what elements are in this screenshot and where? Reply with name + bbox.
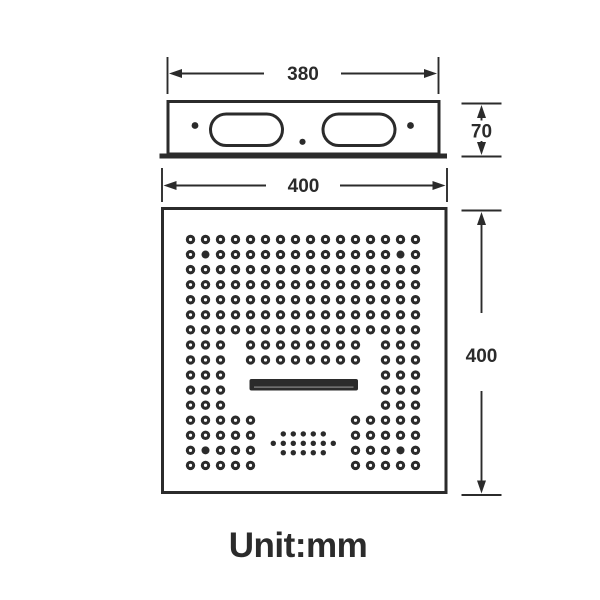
nozzle-hole [384, 298, 387, 301]
nozzle-hole [264, 238, 267, 241]
nozzle-hole [249, 268, 252, 271]
nozzle-hole [354, 238, 357, 241]
led-nozzle-dot [397, 446, 405, 454]
nozzle-hole [414, 389, 417, 392]
nozzle-hole [219, 253, 222, 256]
nozzle-hole [369, 253, 372, 256]
arrow-down-icon [477, 142, 486, 155]
nozzle-hole [384, 373, 387, 376]
nozzle-hole [384, 449, 387, 452]
mist-nozzle-dot [321, 431, 326, 436]
mist-nozzle-dot [271, 441, 276, 446]
product-dimension-diagram: 380 70 [0, 0, 600, 600]
nozzle-hole [384, 434, 387, 437]
mist-nozzle-dot [321, 441, 326, 446]
unit-label: Unit:mm [229, 526, 367, 565]
nozzle-hole [414, 358, 417, 361]
nozzle-hole [309, 283, 312, 286]
nozzle-hole [339, 328, 342, 331]
mist-nozzle-dot [281, 441, 286, 446]
nozzle-hole [294, 253, 297, 256]
nozzle-hole [384, 389, 387, 392]
nozzle-hole [189, 253, 192, 256]
nozzle-hole [414, 343, 417, 346]
waterfall-slot-highlight [254, 386, 354, 388]
nozzle-hole [264, 328, 267, 331]
nozzle-hole [339, 358, 342, 361]
nozzle-hole [414, 434, 417, 437]
nozzle-hole [339, 253, 342, 256]
nozzle-hole [294, 268, 297, 271]
nozzle-hole [189, 298, 192, 301]
nozzle-hole [414, 238, 417, 241]
nozzle-hole [414, 373, 417, 376]
nozzle-hole [204, 373, 207, 376]
nozzle-hole [369, 313, 372, 316]
nozzle-hole [279, 238, 282, 241]
nozzle-hole [354, 298, 357, 301]
nozzle-hole [279, 313, 282, 316]
nozzle-hole [219, 389, 222, 392]
nozzle-hole [234, 253, 237, 256]
nozzle-hole [309, 343, 312, 346]
nozzle-hole [279, 358, 282, 361]
nozzle-hole [219, 434, 222, 437]
nozzle-hole [384, 283, 387, 286]
nozzle-hole [264, 253, 267, 256]
oval-cutout-right [323, 114, 395, 146]
nozzle-hole [354, 313, 357, 316]
nozzle-hole [399, 328, 402, 331]
nozzle-hole [369, 238, 372, 241]
nozzle-hole [369, 449, 372, 452]
nozzle-hole [204, 389, 207, 392]
dimension-face-height: 400 [462, 211, 502, 496]
nozzle-hole [384, 419, 387, 422]
nozzle-hole [414, 283, 417, 286]
nozzle-hole [339, 298, 342, 301]
nozzle-hole [309, 328, 312, 331]
nozzle-hole [219, 268, 222, 271]
nozzle-hole [249, 434, 252, 437]
nozzle-hole [414, 298, 417, 301]
led-nozzle-dot [202, 446, 210, 454]
mist-nozzle-dot [291, 431, 296, 436]
nozzle-hole [234, 328, 237, 331]
mist-nozzle-dot [301, 450, 306, 455]
nozzle-hole [219, 238, 222, 241]
led-nozzle-dot [202, 251, 210, 259]
nozzle-hole [324, 358, 327, 361]
dimension-label-face-width: 400 [288, 176, 320, 197]
nozzle-hole [399, 404, 402, 407]
nozzle-hole [354, 328, 357, 331]
nozzle-hole [339, 343, 342, 346]
nozzle-hole [279, 253, 282, 256]
arrow-down-icon [477, 481, 486, 494]
nozzle-hole [399, 343, 402, 346]
nozzle-hole [234, 268, 237, 271]
nozzle-hole [219, 328, 222, 331]
nozzle-hole [294, 358, 297, 361]
nozzle-hole [399, 268, 402, 271]
arrow-up-icon [477, 105, 486, 118]
nozzle-hole [369, 283, 372, 286]
mist-nozzle-dot [281, 431, 286, 436]
nozzle-hole [339, 313, 342, 316]
mist-nozzle-dot [301, 441, 306, 446]
nozzle-hole [384, 464, 387, 467]
nozzle-hole [354, 419, 357, 422]
nozzle-hole [384, 404, 387, 407]
nozzle-hole [249, 419, 252, 422]
nozzle-hole [219, 404, 222, 407]
nozzle-hole [204, 358, 207, 361]
mist-nozzle-dot [331, 441, 336, 446]
nozzle-hole [249, 358, 252, 361]
side-view-flange [160, 154, 448, 159]
nozzle-hole [324, 313, 327, 316]
nozzle-hole [324, 343, 327, 346]
nozzle-hole [294, 283, 297, 286]
nozzle-hole [369, 434, 372, 437]
technical-drawing-svg: 380 70 [0, 0, 600, 600]
nozzle-hole [414, 404, 417, 407]
nozzle-hole [189, 238, 192, 241]
nozzle-hole [219, 419, 222, 422]
nozzle-hole [309, 253, 312, 256]
nozzle-hole [219, 283, 222, 286]
nozzle-hole [279, 328, 282, 331]
nozzle-hole [264, 298, 267, 301]
nozzle-hole [204, 419, 207, 422]
arrow-left-icon [164, 181, 177, 190]
nozzle-hole [279, 343, 282, 346]
oval-cutout-left [211, 114, 283, 146]
nozzle-hole [294, 343, 297, 346]
dimension-label-face-height: 400 [466, 346, 498, 367]
arrow-left-icon [169, 69, 182, 78]
nozzle-hole [264, 313, 267, 316]
nozzle-hole [414, 419, 417, 422]
nozzle-hole [249, 343, 252, 346]
nozzle-hole [234, 449, 237, 452]
nozzle-hole [399, 419, 402, 422]
nozzle-hole [399, 389, 402, 392]
nozzle-hole [414, 313, 417, 316]
nozzle-hole [189, 373, 192, 376]
nozzle-hole [249, 253, 252, 256]
nozzle-hole [279, 268, 282, 271]
nozzle-hole [264, 343, 267, 346]
nozzle-hole [354, 358, 357, 361]
nozzle-hole [354, 283, 357, 286]
mist-nozzle-dot [311, 441, 316, 446]
nozzle-hole [294, 298, 297, 301]
dimension-label-body-height: 70 [471, 122, 492, 143]
nozzle-hole [369, 464, 372, 467]
nozzle-hole [339, 283, 342, 286]
mist-nozzle-dot [321, 450, 326, 455]
nozzle-hole [384, 268, 387, 271]
nozzle-hole [219, 373, 222, 376]
arrow-right-icon [433, 181, 446, 190]
nozzle-hole [204, 464, 207, 467]
nozzle-hole [399, 434, 402, 437]
nozzle-hole [399, 464, 402, 467]
nozzle-hole [354, 434, 357, 437]
nozzle-hole [414, 464, 417, 467]
nozzle-hole [249, 298, 252, 301]
nozzle-hole [249, 283, 252, 286]
nozzle-hole [399, 238, 402, 241]
nozzle-hole [234, 298, 237, 301]
nozzle-hole [384, 238, 387, 241]
nozzle-hole [204, 404, 207, 407]
nozzle-hole [354, 464, 357, 467]
nozzle-hole [384, 253, 387, 256]
mist-nozzle-dot [291, 450, 296, 455]
nozzle-hole [384, 328, 387, 331]
nozzle-hole [204, 343, 207, 346]
nozzle-hole [309, 313, 312, 316]
nozzle-hole [204, 328, 207, 331]
mounting-hole-right [407, 122, 414, 129]
nozzle-hole [189, 268, 192, 271]
nozzle-hole [219, 343, 222, 346]
nozzle-hole [369, 419, 372, 422]
nozzle-hole [414, 253, 417, 256]
mist-nozzle-cluster [271, 431, 336, 455]
nozzle-hole [309, 238, 312, 241]
nozzle-hole [234, 238, 237, 241]
nozzle-hole [189, 434, 192, 437]
nozzle-hole [399, 313, 402, 316]
nozzle-hole [249, 313, 252, 316]
arrow-up-icon [477, 212, 486, 225]
nozzle-hole [309, 268, 312, 271]
nozzle-hole [189, 389, 192, 392]
nozzle-hole [309, 358, 312, 361]
nozzle-hole [219, 298, 222, 301]
nozzle-hole [204, 313, 207, 316]
dimension-body-height: 70 [462, 104, 502, 157]
nozzle-hole [204, 268, 207, 271]
nozzle-hole [384, 313, 387, 316]
dimension-label-top-width: 380 [287, 64, 319, 85]
nozzle-hole [219, 464, 222, 467]
nozzle-hole [294, 328, 297, 331]
nozzle-hole [354, 253, 357, 256]
nozzle-hole [339, 238, 342, 241]
nozzle-hole [369, 328, 372, 331]
nozzle-hole [264, 268, 267, 271]
nozzle-hole [219, 313, 222, 316]
nozzle-hole [324, 253, 327, 256]
side-view [160, 102, 448, 159]
nozzle-hole [399, 358, 402, 361]
dimension-face-width: 400 [162, 168, 447, 202]
nozzle-hole [219, 358, 222, 361]
nozzle-hole [369, 298, 372, 301]
nozzle-hole [414, 268, 417, 271]
mounting-hole-center [299, 139, 305, 145]
mist-nozzle-dot [311, 431, 316, 436]
nozzle-hole [294, 238, 297, 241]
nozzle-hole [189, 464, 192, 467]
nozzle-hole [249, 238, 252, 241]
mist-nozzle-dot [281, 450, 286, 455]
nozzle-hole [399, 298, 402, 301]
nozzle-hole [369, 268, 372, 271]
nozzle-hole [234, 434, 237, 437]
nozzle-hole [339, 268, 342, 271]
nozzle-hole [204, 283, 207, 286]
nozzle-hole [324, 298, 327, 301]
nozzle-hole [279, 298, 282, 301]
nozzle-hole [189, 358, 192, 361]
nozzle-hole [249, 464, 252, 467]
nozzle-hole [189, 404, 192, 407]
nozzle-hole [264, 358, 267, 361]
nozzle-hole [234, 419, 237, 422]
nozzle-hole [414, 328, 417, 331]
nozzle-hole [354, 449, 357, 452]
mist-nozzle-dot [291, 441, 296, 446]
nozzle-hole [384, 343, 387, 346]
nozzle-hole [414, 449, 417, 452]
side-view-body [168, 102, 439, 155]
shower-face [163, 209, 447, 493]
nozzle-hole [249, 328, 252, 331]
mist-nozzle-dot [311, 450, 316, 455]
arrow-right-icon [424, 69, 437, 78]
nozzle-hole [234, 283, 237, 286]
nozzle-hole [204, 298, 207, 301]
dimension-top-width: 380 [168, 57, 439, 94]
nozzle-hole [309, 298, 312, 301]
nozzle-hole [324, 238, 327, 241]
led-nozzle-dot [397, 251, 405, 259]
mounting-hole-left [192, 122, 199, 129]
nozzle-hole [264, 283, 267, 286]
nozzle-hole [384, 358, 387, 361]
nozzle-hole [354, 268, 357, 271]
nozzle-hole [189, 328, 192, 331]
mist-nozzle-dot [301, 431, 306, 436]
nozzle-hole [204, 238, 207, 241]
nozzle-hole [234, 313, 237, 316]
nozzle-hole [234, 464, 237, 467]
nozzle-hole [399, 283, 402, 286]
nozzle-hole [189, 419, 192, 422]
nozzle-hole [204, 434, 207, 437]
nozzle-hole [189, 283, 192, 286]
nozzle-hole [189, 449, 192, 452]
nozzle-hole [219, 449, 222, 452]
nozzle-hole [354, 343, 357, 346]
nozzle-hole [249, 449, 252, 452]
nozzle-hole [279, 283, 282, 286]
nozzle-hole [399, 373, 402, 376]
nozzle-hole [324, 328, 327, 331]
waterfall-slot [250, 379, 359, 391]
nozzle-hole [324, 268, 327, 271]
nozzle-hole [189, 313, 192, 316]
nozzle-hole [324, 283, 327, 286]
nozzle-hole [189, 343, 192, 346]
nozzle-hole [294, 313, 297, 316]
